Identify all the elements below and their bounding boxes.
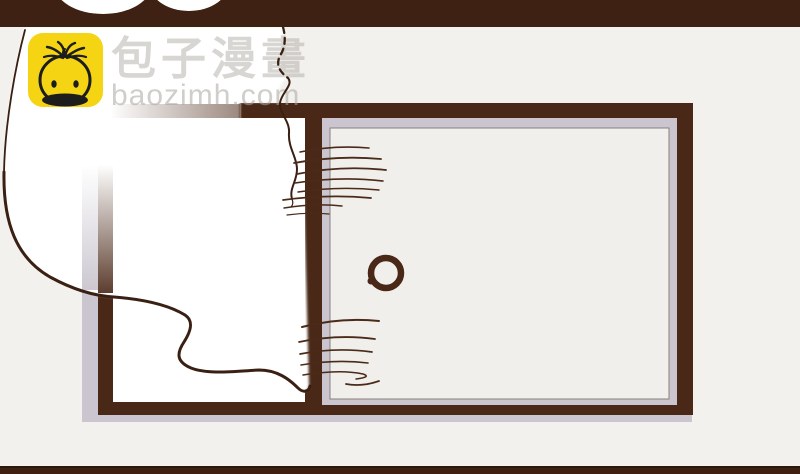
ghost-outline-taper xyxy=(291,199,293,207)
top-bar xyxy=(0,0,800,27)
hair-strokes-lower xyxy=(299,320,379,385)
comic-panel[interactable]: 包子漫畫 baozimh.com xyxy=(0,0,800,474)
hair-strokes-upper xyxy=(283,147,386,215)
cloud-bumps xyxy=(0,0,800,27)
ghost-outline-main xyxy=(4,172,310,391)
cloud-right xyxy=(148,0,230,11)
cloud-left xyxy=(54,0,152,14)
bottom-bar xyxy=(0,466,800,474)
ghost-outline-upper xyxy=(4,30,25,172)
ink-lines xyxy=(0,0,800,474)
ghost-outline-wavy xyxy=(280,78,297,199)
window-knob-circle xyxy=(368,258,402,288)
ghost-outline-dashed xyxy=(278,27,288,78)
